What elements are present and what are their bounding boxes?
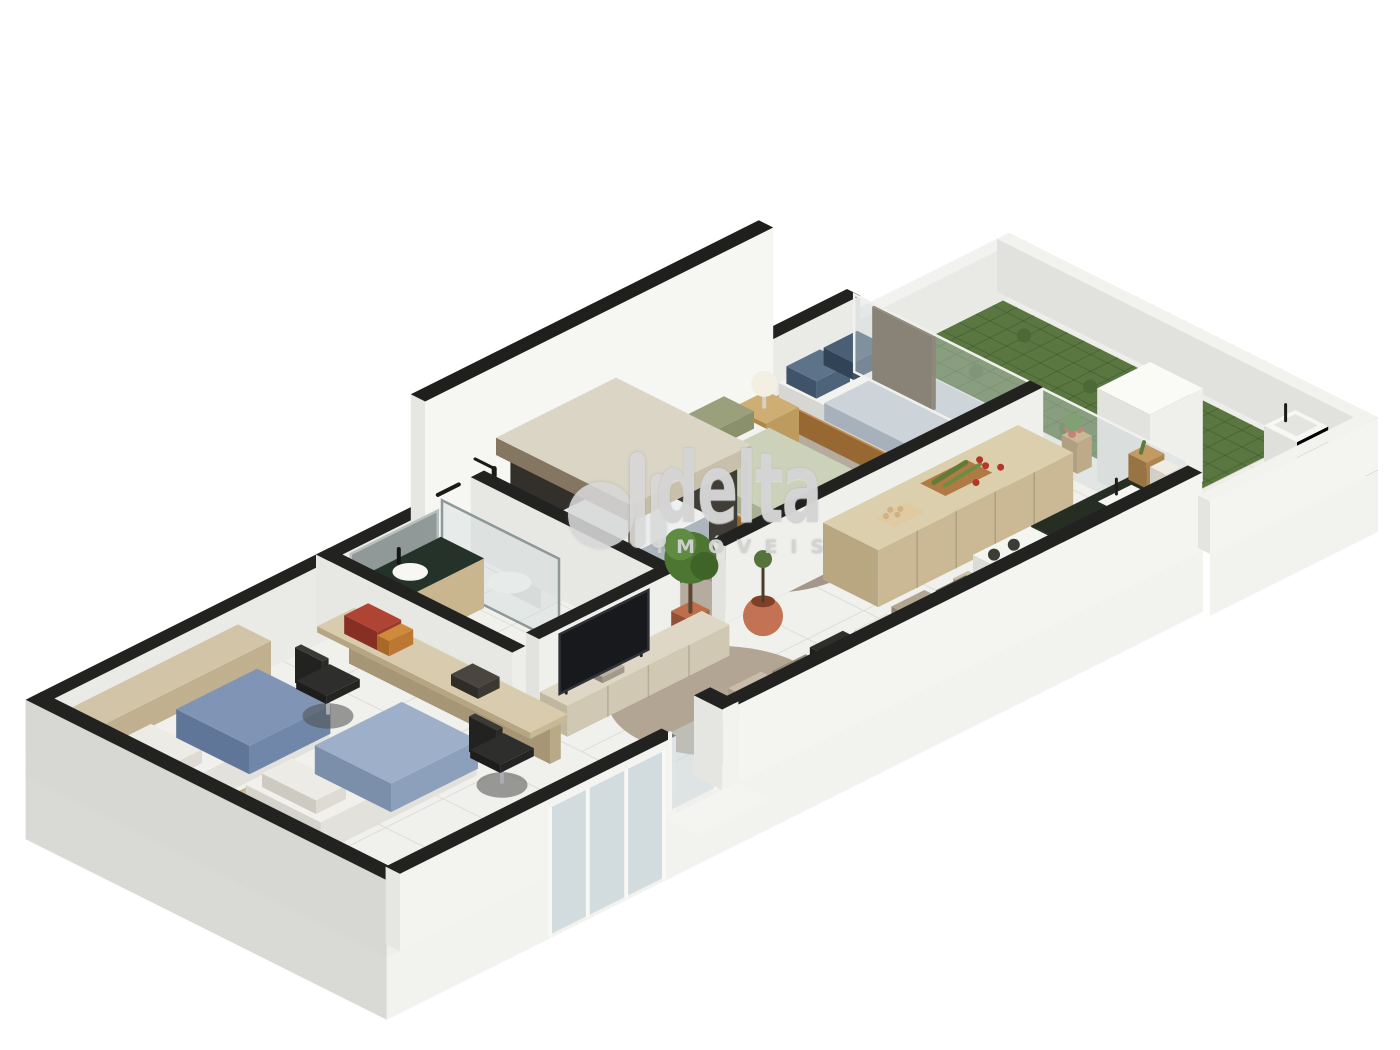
lamp-shade <box>751 371 777 397</box>
ficus-foliage-3 <box>690 552 718 580</box>
isometric-apartment-scene <box>0 0 1400 1050</box>
floorplan-render: delta IMÓVEIS <box>0 0 1400 1050</box>
terracotta-leaf <box>754 550 772 568</box>
entry-column <box>694 687 738 790</box>
ficus-foliage-2 <box>664 528 696 560</box>
vanity-sink <box>392 563 428 581</box>
